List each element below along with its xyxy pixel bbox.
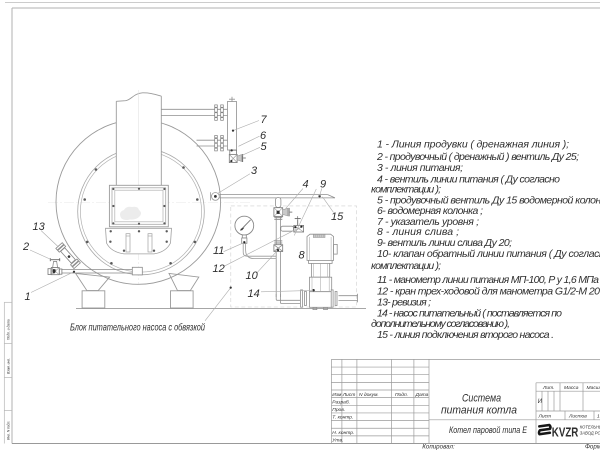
svg-text:1 - Линия продувки ( дренажн: 1 - Линия продувки ( дренажная линия );: [377, 139, 569, 151]
svg-text:Подп. и дата: Подп. и дата: [7, 319, 11, 340]
svg-text:Утв.: Утв.: [332, 438, 343, 444]
svg-text:10: 10: [246, 270, 259, 282]
svg-text:Н. контр.: Н. контр.: [332, 430, 354, 436]
svg-text:Копировал:: Копировал:: [422, 444, 455, 450]
svg-text:Взам. инв.: Взам. инв.: [7, 358, 11, 374]
svg-text:Инв. N подл.: Инв. N подл.: [7, 421, 11, 440]
svg-text:15: 15: [331, 211, 344, 223]
svg-text:комплектации );: комплектации );: [371, 260, 441, 272]
svg-text:11 - манометр линии питания М: 11 - манометр линии питания МП-100, Р у …: [377, 274, 599, 286]
svg-text:Т. контр.: Т. контр.: [332, 415, 353, 421]
svg-text:Лист: Лист: [538, 413, 552, 419]
svg-text:Разраб.: Разраб.: [332, 399, 350, 405]
svg-text:Дата: Дата: [415, 392, 429, 398]
svg-text:8: 8: [299, 250, 306, 262]
svg-text:Блок питательного насоса с обв: Блок питательного насоса с обвязкой: [70, 322, 205, 334]
svg-text:2 - продувочный ( дренажный: 2 - продувочный ( дренажный ) вентиль Ду…: [376, 151, 579, 163]
svg-text:КОТЕЛЬНЫ: КОТЕЛЬНЫ: [580, 425, 600, 430]
svg-text:13: 13: [33, 221, 46, 233]
svg-text:Масшта: Масшта: [587, 385, 600, 391]
svg-text:4: 4: [303, 179, 309, 191]
svg-text:7: 7: [261, 114, 268, 126]
svg-text:N докум.: N докум.: [359, 392, 379, 398]
svg-text:11: 11: [213, 245, 224, 257]
svg-text:10- клапан обратный линии пит: 10- клапан обратный линии питания ( Ду с…: [377, 248, 600, 260]
svg-text:3: 3: [251, 165, 258, 177]
svg-text:12: 12: [213, 263, 225, 275]
svg-text:1: 1: [25, 291, 31, 303]
svg-text:5: 5: [261, 141, 268, 153]
svg-text:KVZR: KVZR: [552, 424, 579, 439]
svg-text:Подп.: Подп.: [395, 392, 408, 398]
svg-text:питания котла: питания котла: [441, 405, 517, 417]
svg-text:9: 9: [320, 179, 326, 191]
svg-text:Котел паровой типа Е: Котел паровой типа Е: [449, 425, 527, 435]
svg-text:ЗАВОД РОС: ЗАВОД РОС: [580, 431, 600, 436]
svg-text:14: 14: [248, 288, 260, 300]
svg-text:Пров.: Пров.: [332, 407, 345, 413]
svg-text:Лит.: Лит.: [542, 385, 554, 391]
svg-text:Формат А3: Формат А3: [585, 444, 600, 450]
svg-text:2: 2: [22, 241, 29, 253]
svg-text:Масса: Масса: [564, 385, 579, 391]
svg-text:Изм: Изм: [332, 392, 342, 398]
svg-text:Листов: Листов: [568, 413, 587, 419]
svg-text:Система: Система: [462, 393, 501, 405]
svg-text:Лист: Лист: [342, 392, 356, 398]
svg-text:И: И: [538, 399, 543, 405]
svg-text:3 - линия питания;: 3 - линия питания;: [377, 162, 463, 174]
svg-text:15 - линия подключения второг: 15 - линия подключения второго насоса .: [377, 329, 554, 341]
